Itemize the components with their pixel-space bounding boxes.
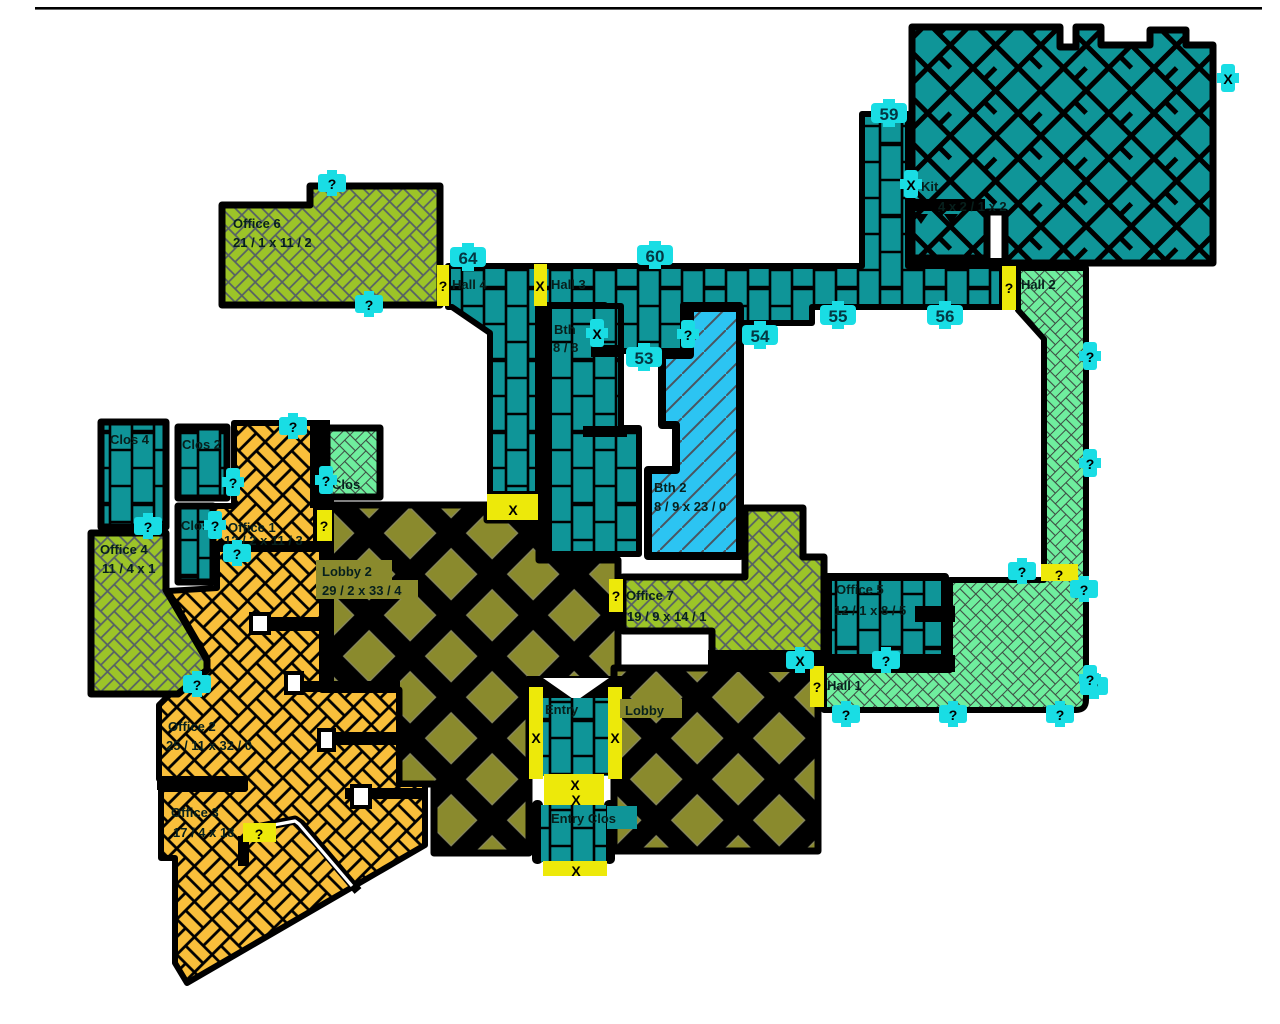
svg-text:X: X (906, 177, 916, 193)
svg-text:53: 53 (635, 349, 654, 368)
svg-text:Entry: Entry (545, 702, 579, 717)
svg-text:Hall 2: Hall 2 (1021, 277, 1056, 292)
svg-text:?: ? (1005, 280, 1014, 296)
svg-text:Office 5: Office 5 (836, 582, 884, 597)
svg-text:?: ? (229, 475, 238, 491)
svg-text:?: ? (328, 176, 337, 192)
svg-text:?: ? (322, 473, 331, 489)
svg-text:?: ? (1018, 564, 1027, 580)
svg-text:Clos 2: Clos 2 (182, 437, 221, 452)
svg-text:8 / 9 x 23 / 0: 8 / 9 x 23 / 0 (654, 499, 726, 514)
svg-text:Hall 4: Hall 4 (452, 277, 487, 292)
svg-text:?: ? (289, 419, 298, 435)
svg-text:?: ? (949, 707, 958, 723)
svg-text:Hall 3: Hall 3 (551, 277, 586, 292)
svg-text:X: X (610, 730, 620, 746)
svg-text:?: ? (1055, 567, 1064, 583)
svg-text:Office 7: Office 7 (626, 588, 674, 603)
svg-text:11 / 4 x 1: 11 / 4 x 1 (102, 561, 156, 576)
svg-text:Clos 4: Clos 4 (110, 432, 150, 447)
svg-text:X: X (571, 863, 581, 879)
svg-text:59: 59 (880, 105, 899, 124)
svg-text:?: ? (233, 546, 242, 562)
svg-text:X: X (535, 278, 545, 294)
svg-text:Lobby: Lobby (625, 703, 665, 718)
svg-text:?: ? (842, 707, 851, 723)
svg-text:Office 2: Office 2 (168, 719, 216, 734)
svg-text:?: ? (439, 278, 448, 294)
svg-text:?: ? (365, 297, 374, 313)
svg-text:X: X (531, 730, 541, 746)
svg-text:17 / 4 x 18: 17 / 4 x 18 (173, 825, 234, 840)
svg-text:?: ? (193, 677, 202, 693)
svg-text:Bth 2: Bth 2 (654, 480, 687, 495)
svg-text:X: X (795, 653, 805, 669)
svg-text:X: X (1223, 71, 1233, 87)
svg-text:?: ? (1080, 582, 1089, 598)
svg-text:Office 6: Office 6 (233, 216, 281, 231)
svg-text:Kit: Kit (921, 179, 939, 194)
svg-text:X: X (571, 792, 581, 808)
svg-text:?: ? (255, 826, 264, 842)
svg-text:?: ? (320, 518, 329, 534)
svg-text:?: ? (882, 653, 891, 669)
svg-text:?: ? (684, 327, 693, 343)
svg-text:12 / 1 x 8 / 5: 12 / 1 x 8 / 5 (834, 603, 906, 618)
svg-text:19 / 9 x 14 / 1: 19 / 9 x 14 / 1 (627, 609, 707, 624)
svg-text:?: ? (1086, 349, 1095, 365)
svg-text:Office 4: Office 4 (100, 542, 148, 557)
svg-text:55: 55 (829, 307, 848, 326)
svg-text:X: X (592, 326, 602, 342)
svg-text:29 / 2 x 33 / 4: 29 / 2 x 33 / 4 (322, 583, 402, 598)
svg-text:?: ? (1086, 672, 1095, 688)
svg-text:60: 60 (646, 247, 665, 266)
svg-text:25 / 11 x 32 / 0: 25 / 11 x 32 / 0 (166, 738, 252, 753)
svg-text:54: 54 (751, 327, 770, 346)
svg-text:?: ? (1056, 707, 1065, 723)
svg-text:?: ? (813, 679, 822, 695)
svg-text:Bth: Bth (554, 322, 576, 337)
svg-text:Lobby 2: Lobby 2 (322, 564, 372, 579)
svg-text:Office 3: Office 3 (171, 805, 219, 820)
svg-text:?: ? (144, 519, 153, 535)
svg-text:?: ? (1086, 456, 1095, 472)
svg-text:Entry Clos: Entry Clos (551, 811, 616, 826)
svg-text:56: 56 (936, 307, 955, 326)
svg-text:Hall 1: Hall 1 (827, 678, 862, 693)
svg-text:?: ? (612, 588, 621, 604)
svg-text:8 / 8: 8 / 8 (553, 340, 578, 355)
svg-text:?: ? (211, 518, 220, 534)
svg-text:64: 64 (459, 249, 478, 268)
svg-text:X: X (508, 502, 518, 518)
svg-text:4 x 2 / 1 x 2: 4 x 2 / 1 x 2 (938, 199, 1007, 214)
svg-text:X: X (570, 777, 580, 793)
svg-text:21 / 1 x 11 / 2: 21 / 1 x 11 / 2 (233, 235, 312, 250)
